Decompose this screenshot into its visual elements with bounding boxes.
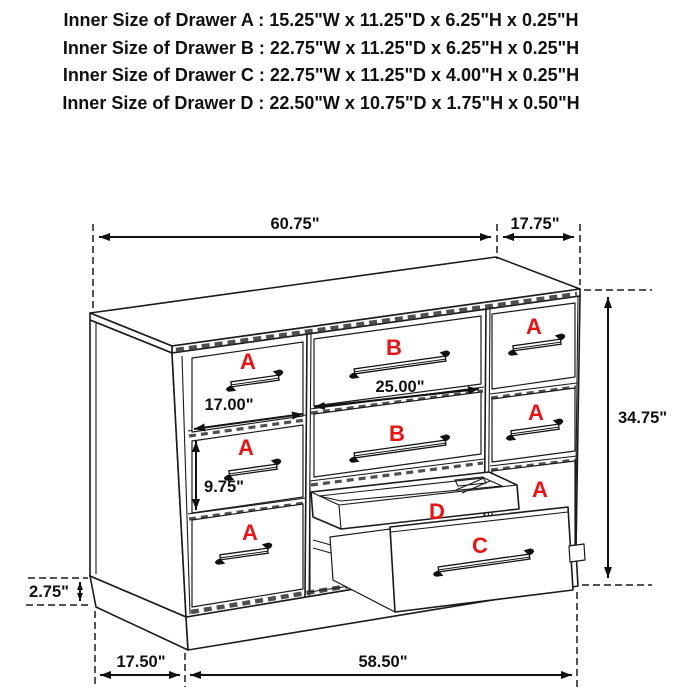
base-side-depth-label: 17.50" bbox=[116, 653, 165, 671]
inner-size-header: Inner Size of Drawer A : 15.25"W x 11.25… bbox=[62, 10, 579, 113]
top-width-label: 60.75" bbox=[270, 215, 319, 233]
header-line-c: Inner Size of Drawer C : 22.75"W x 11.25… bbox=[63, 65, 579, 85]
label-drawer-a2: A bbox=[238, 435, 254, 460]
label-drawer-d: D bbox=[429, 499, 445, 524]
label-drawer-a6: A bbox=[532, 477, 548, 502]
dresser-drawing: A A A B B A A A D C bbox=[90, 257, 585, 650]
header-line-a: Inner Size of Drawer A : 15.25"W x 11.25… bbox=[63, 10, 578, 30]
left-side-panel bbox=[90, 320, 186, 617]
drawer-a-width-label: 17.00" bbox=[204, 396, 253, 414]
label-drawer-a3: A bbox=[242, 520, 258, 545]
label-drawer-b1: B bbox=[386, 335, 402, 360]
label-drawer-a4: A bbox=[526, 314, 542, 339]
dresser-dimension-diagram: Inner Size of Drawer A : 15.25"W x 11.25… bbox=[0, 0, 700, 700]
label-drawer-a5: A bbox=[528, 400, 544, 425]
drawer-b-width-label: 25.00" bbox=[375, 378, 424, 396]
label-drawer-b2: B bbox=[389, 421, 405, 446]
label-drawer-c: C bbox=[472, 533, 488, 558]
top-depth-label: 17.75" bbox=[510, 215, 559, 233]
header-line-d: Inner Size of Drawer D : 22.50"W x 10.75… bbox=[62, 93, 579, 113]
overall-height-dimension: 34.75" bbox=[582, 290, 667, 585]
drawer-a-height-label: 9.75" bbox=[204, 478, 244, 496]
overall-height-label: 34.75" bbox=[618, 409, 667, 427]
base-front-width-label: 58.50" bbox=[358, 653, 407, 671]
label-drawer-a1: A bbox=[240, 349, 256, 374]
header-line-b: Inner Size of Drawer B : 22.75"W x 11.25… bbox=[63, 38, 579, 58]
diagram-canvas: Inner Size of Drawer A : 15.25"W x 11.25… bbox=[0, 0, 700, 700]
right-foot-block bbox=[569, 544, 585, 562]
base-height-dimension: 2.75" bbox=[26, 578, 92, 605]
base-height-label: 2.75" bbox=[29, 583, 69, 601]
